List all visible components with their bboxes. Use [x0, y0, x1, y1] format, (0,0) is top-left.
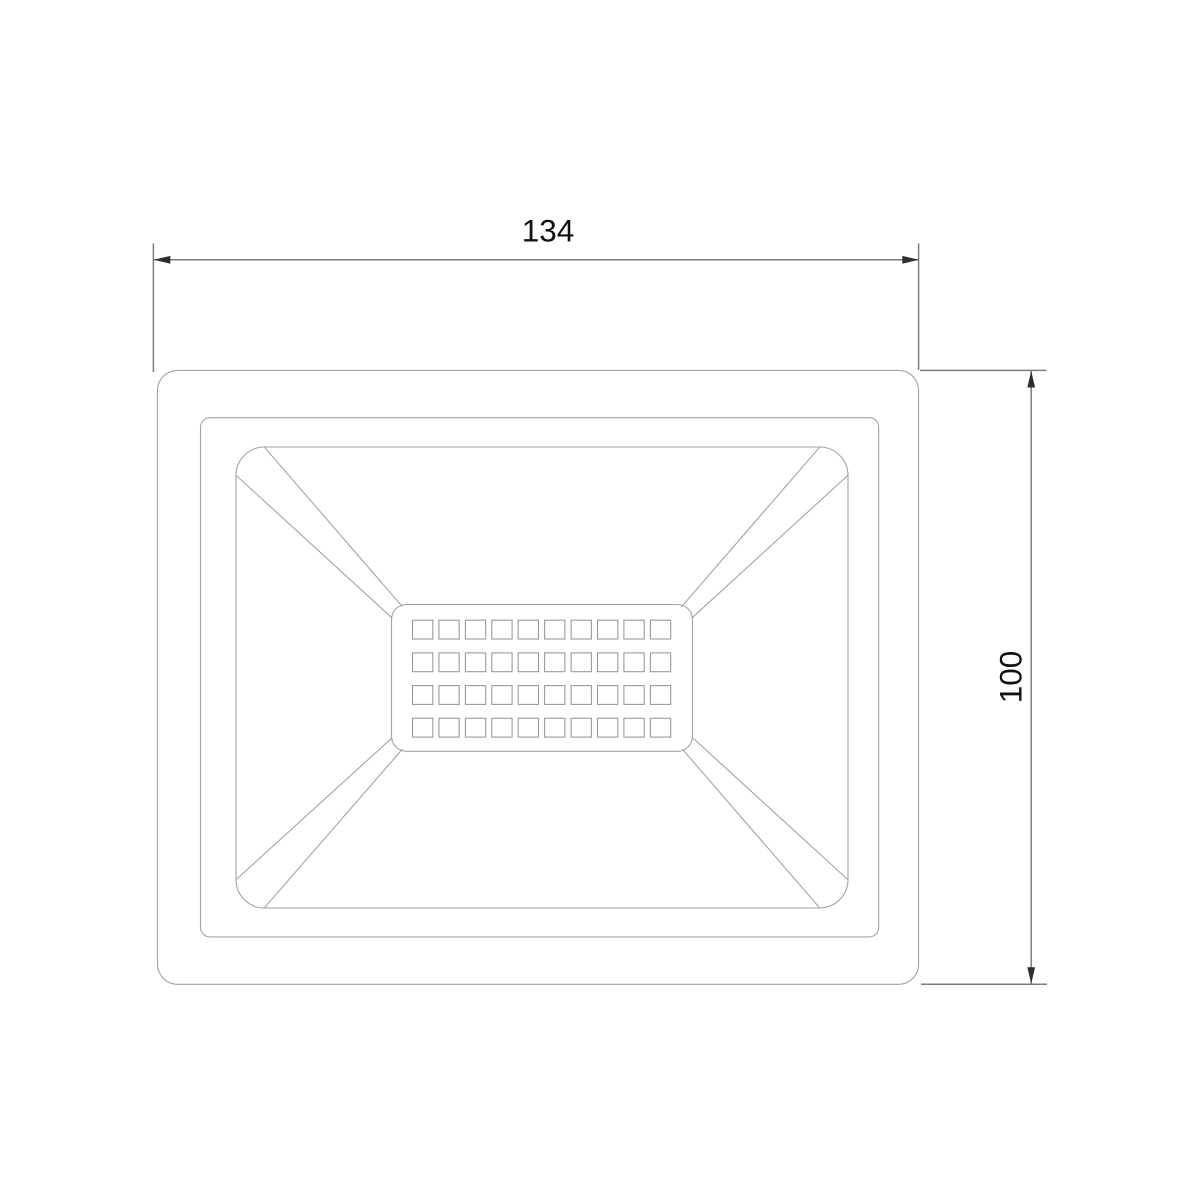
svg-text:134: 134: [522, 213, 575, 249]
svg-text:100: 100: [993, 651, 1029, 704]
